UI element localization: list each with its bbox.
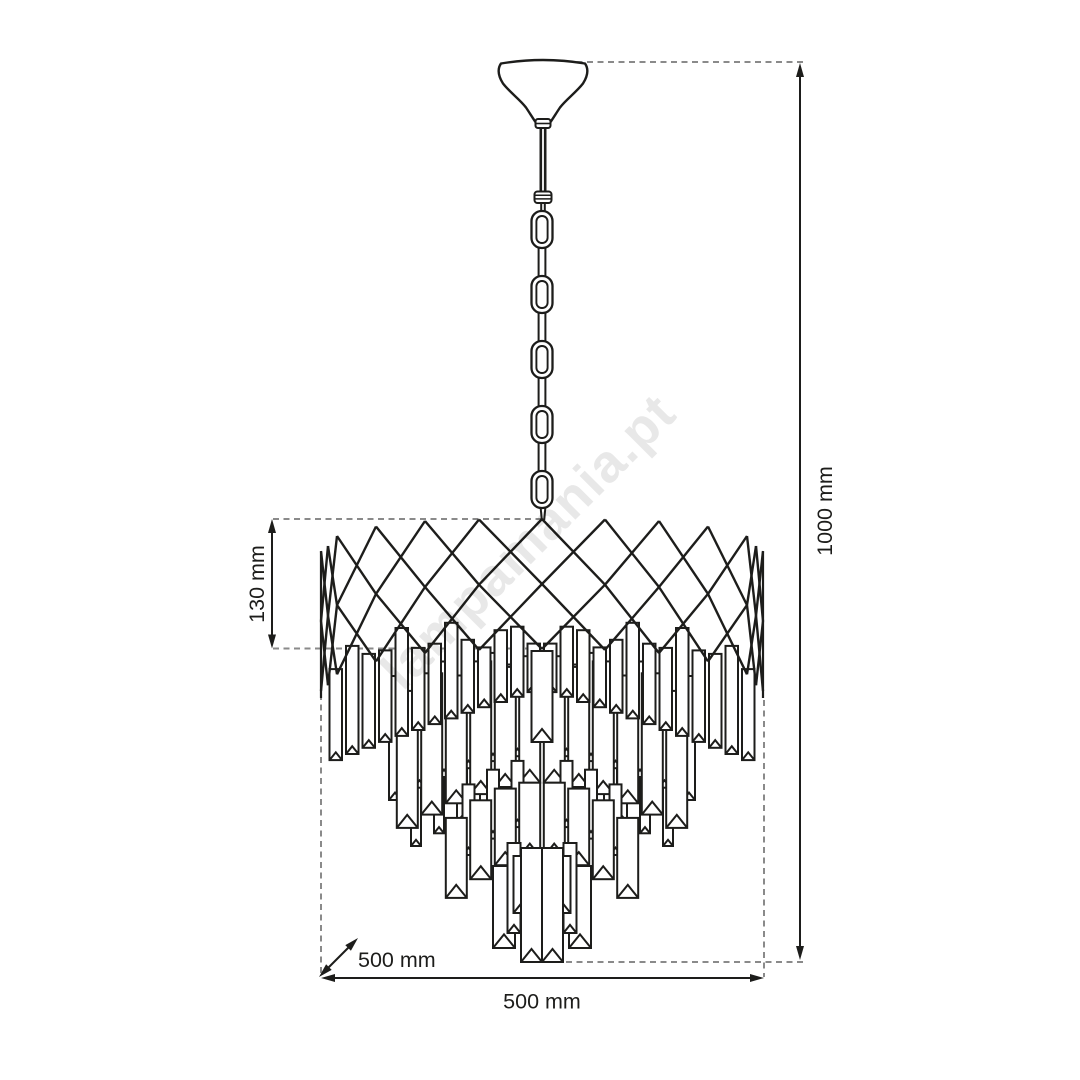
- svg-text:1000 mm: 1000 mm: [813, 466, 837, 556]
- svg-text:500 mm: 500 mm: [358, 948, 436, 972]
- svg-text:500 mm: 500 mm: [503, 990, 581, 1014]
- svg-text:130 mm: 130 mm: [245, 545, 269, 623]
